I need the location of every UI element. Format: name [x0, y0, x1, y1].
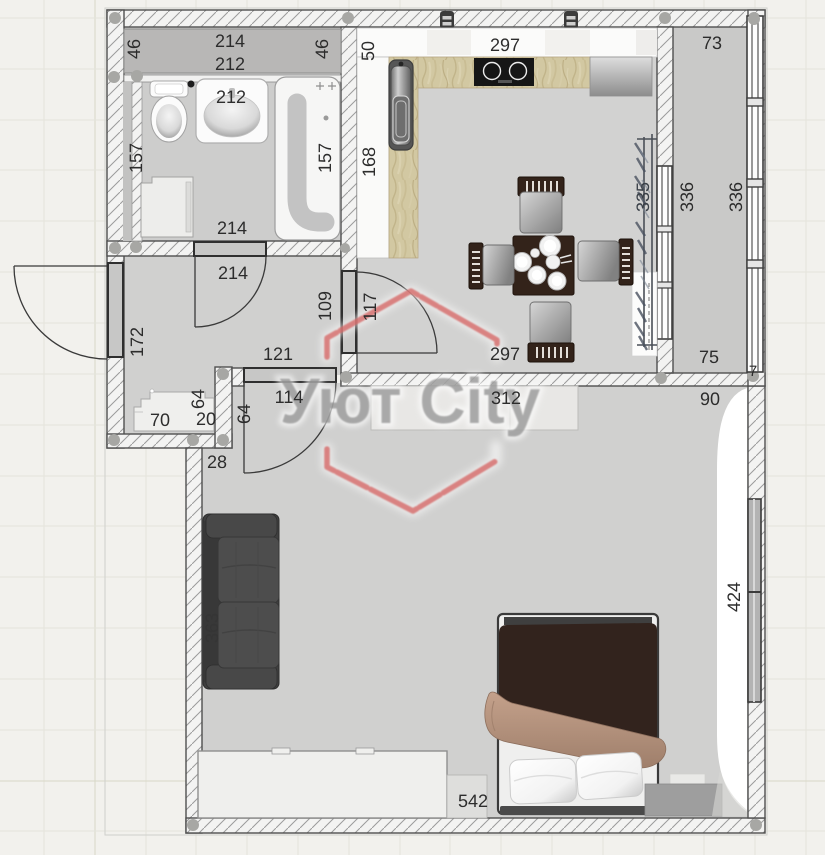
- svg-text:214: 214: [218, 263, 248, 283]
- svg-text:114: 114: [275, 387, 304, 407]
- svg-text:336: 336: [726, 182, 746, 212]
- svg-text:312: 312: [491, 388, 521, 408]
- svg-text:70: 70: [150, 410, 170, 430]
- svg-text:335: 335: [633, 182, 653, 212]
- svg-text:168: 168: [359, 147, 379, 177]
- svg-text:7: 7: [749, 363, 757, 380]
- svg-text:117: 117: [360, 293, 380, 322]
- svg-text:214: 214: [215, 31, 245, 51]
- svg-text:50: 50: [358, 41, 378, 61]
- svg-text:157: 157: [126, 143, 146, 173]
- svg-text:297: 297: [490, 344, 520, 364]
- svg-text:214: 214: [217, 218, 247, 238]
- svg-text:212: 212: [216, 87, 246, 107]
- svg-text:64: 64: [188, 389, 208, 409]
- svg-text:424: 424: [724, 582, 744, 612]
- svg-text:172: 172: [127, 327, 147, 357]
- svg-text:157: 157: [315, 143, 335, 173]
- svg-text:73: 73: [702, 33, 722, 53]
- svg-text:212: 212: [215, 54, 245, 74]
- svg-text:121: 121: [263, 344, 293, 364]
- svg-text:75: 75: [699, 347, 719, 367]
- svg-text:542: 542: [458, 791, 488, 811]
- svg-text:64: 64: [234, 404, 254, 424]
- svg-text:363: 363: [202, 613, 222, 643]
- svg-text:297: 297: [490, 35, 520, 55]
- svg-text:46: 46: [312, 39, 332, 59]
- svg-text:28: 28: [207, 452, 227, 472]
- svg-text:90: 90: [700, 389, 720, 409]
- svg-text:336: 336: [677, 182, 697, 212]
- svg-text:46: 46: [124, 39, 144, 59]
- svg-text:20: 20: [196, 409, 216, 429]
- svg-text:109: 109: [315, 291, 335, 321]
